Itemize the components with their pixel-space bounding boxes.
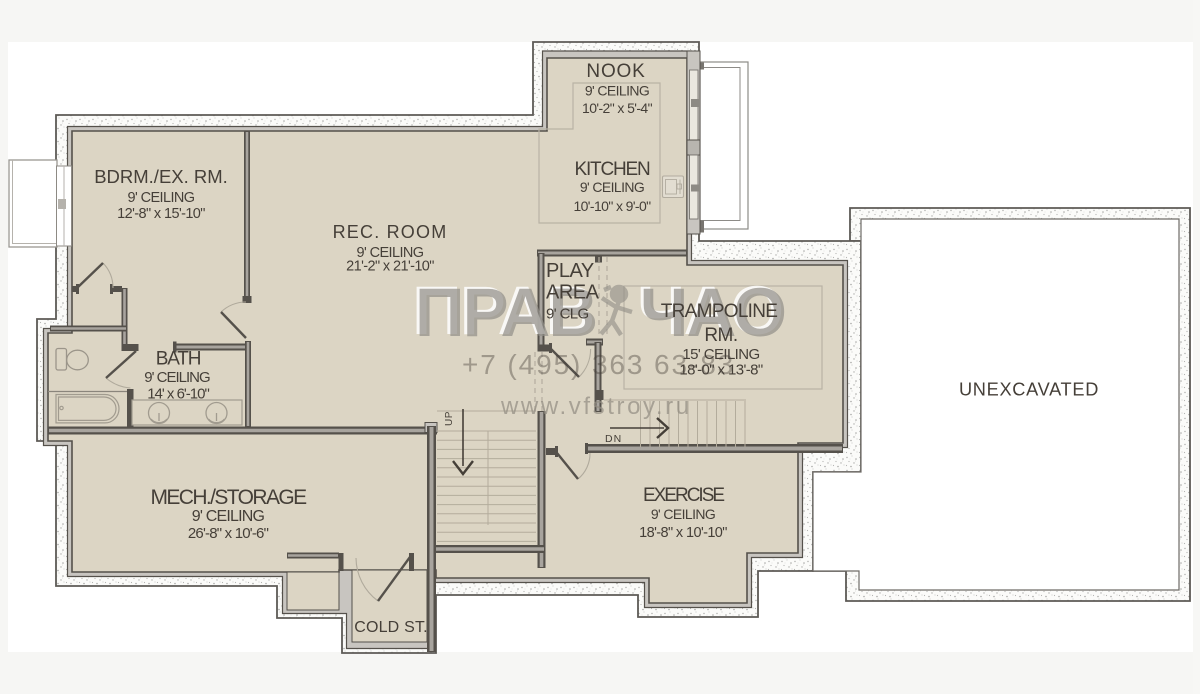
svg-text:DN: DN [605,433,622,445]
svg-text:9' CEILING: 9' CEILING [651,506,715,522]
svg-text:26'-8" x 10'-6": 26'-8" x 10'-6" [188,525,269,542]
svg-text:9' CLG: 9' CLG [546,306,589,323]
svg-text:TRAMPOLINE: TRAMPOLINE [661,301,778,322]
svg-text:9' CEILING: 9' CEILING [580,179,644,195]
svg-text:10'-2" x 5'-4": 10'-2" x 5'-4" [582,100,653,116]
svg-text:NOOK: NOOK [586,61,645,82]
svg-text:UNEXCAVATED: UNEXCAVATED [959,380,1099,400]
svg-text:RM.: RM. [704,325,737,346]
svg-text:21'-2" x 21'-10": 21'-2" x 21'-10" [346,259,434,275]
svg-text:BATH: BATH [156,349,201,370]
svg-text:KITCHEN: KITCHEN [575,159,650,180]
svg-text:9' CEILING: 9' CEILING [585,83,649,99]
svg-text:AREA: AREA [546,282,600,304]
svg-text:PLAY: PLAY [546,260,594,282]
svg-text:9' CEILING: 9' CEILING [128,190,195,206]
svg-text:14' x 6'-10": 14' x 6'-10" [147,386,209,403]
svg-text:BDRM./EX. RM.: BDRM./EX. RM. [94,166,228,187]
svg-text:MECH./STORAGE: MECH./STORAGE [150,486,307,509]
svg-text:9' CEILING: 9' CEILING [144,369,210,386]
svg-text:www.vfstroy.ru: www.vfstroy.ru [500,393,692,420]
svg-text:10'-10" x 9'-0": 10'-10" x 9'-0" [573,198,651,214]
svg-text:15' CEILING: 15' CEILING [682,346,759,363]
svg-text:18'-0" x 13'-8": 18'-0" x 13'-8" [679,362,763,379]
svg-text:EXERCISE: EXERCISE [643,485,724,506]
svg-text:UP: UP [444,411,455,426]
svg-text:COLD ST.: COLD ST. [354,619,428,636]
svg-text:12'-8" x 15'-10": 12'-8" x 15'-10" [117,206,205,222]
svg-text:REC. ROOM: REC. ROOM [333,222,448,242]
svg-text:18'-8" x 10'-10": 18'-8" x 10'-10" [639,525,727,541]
svg-text:9' CEILING: 9' CEILING [192,508,265,525]
